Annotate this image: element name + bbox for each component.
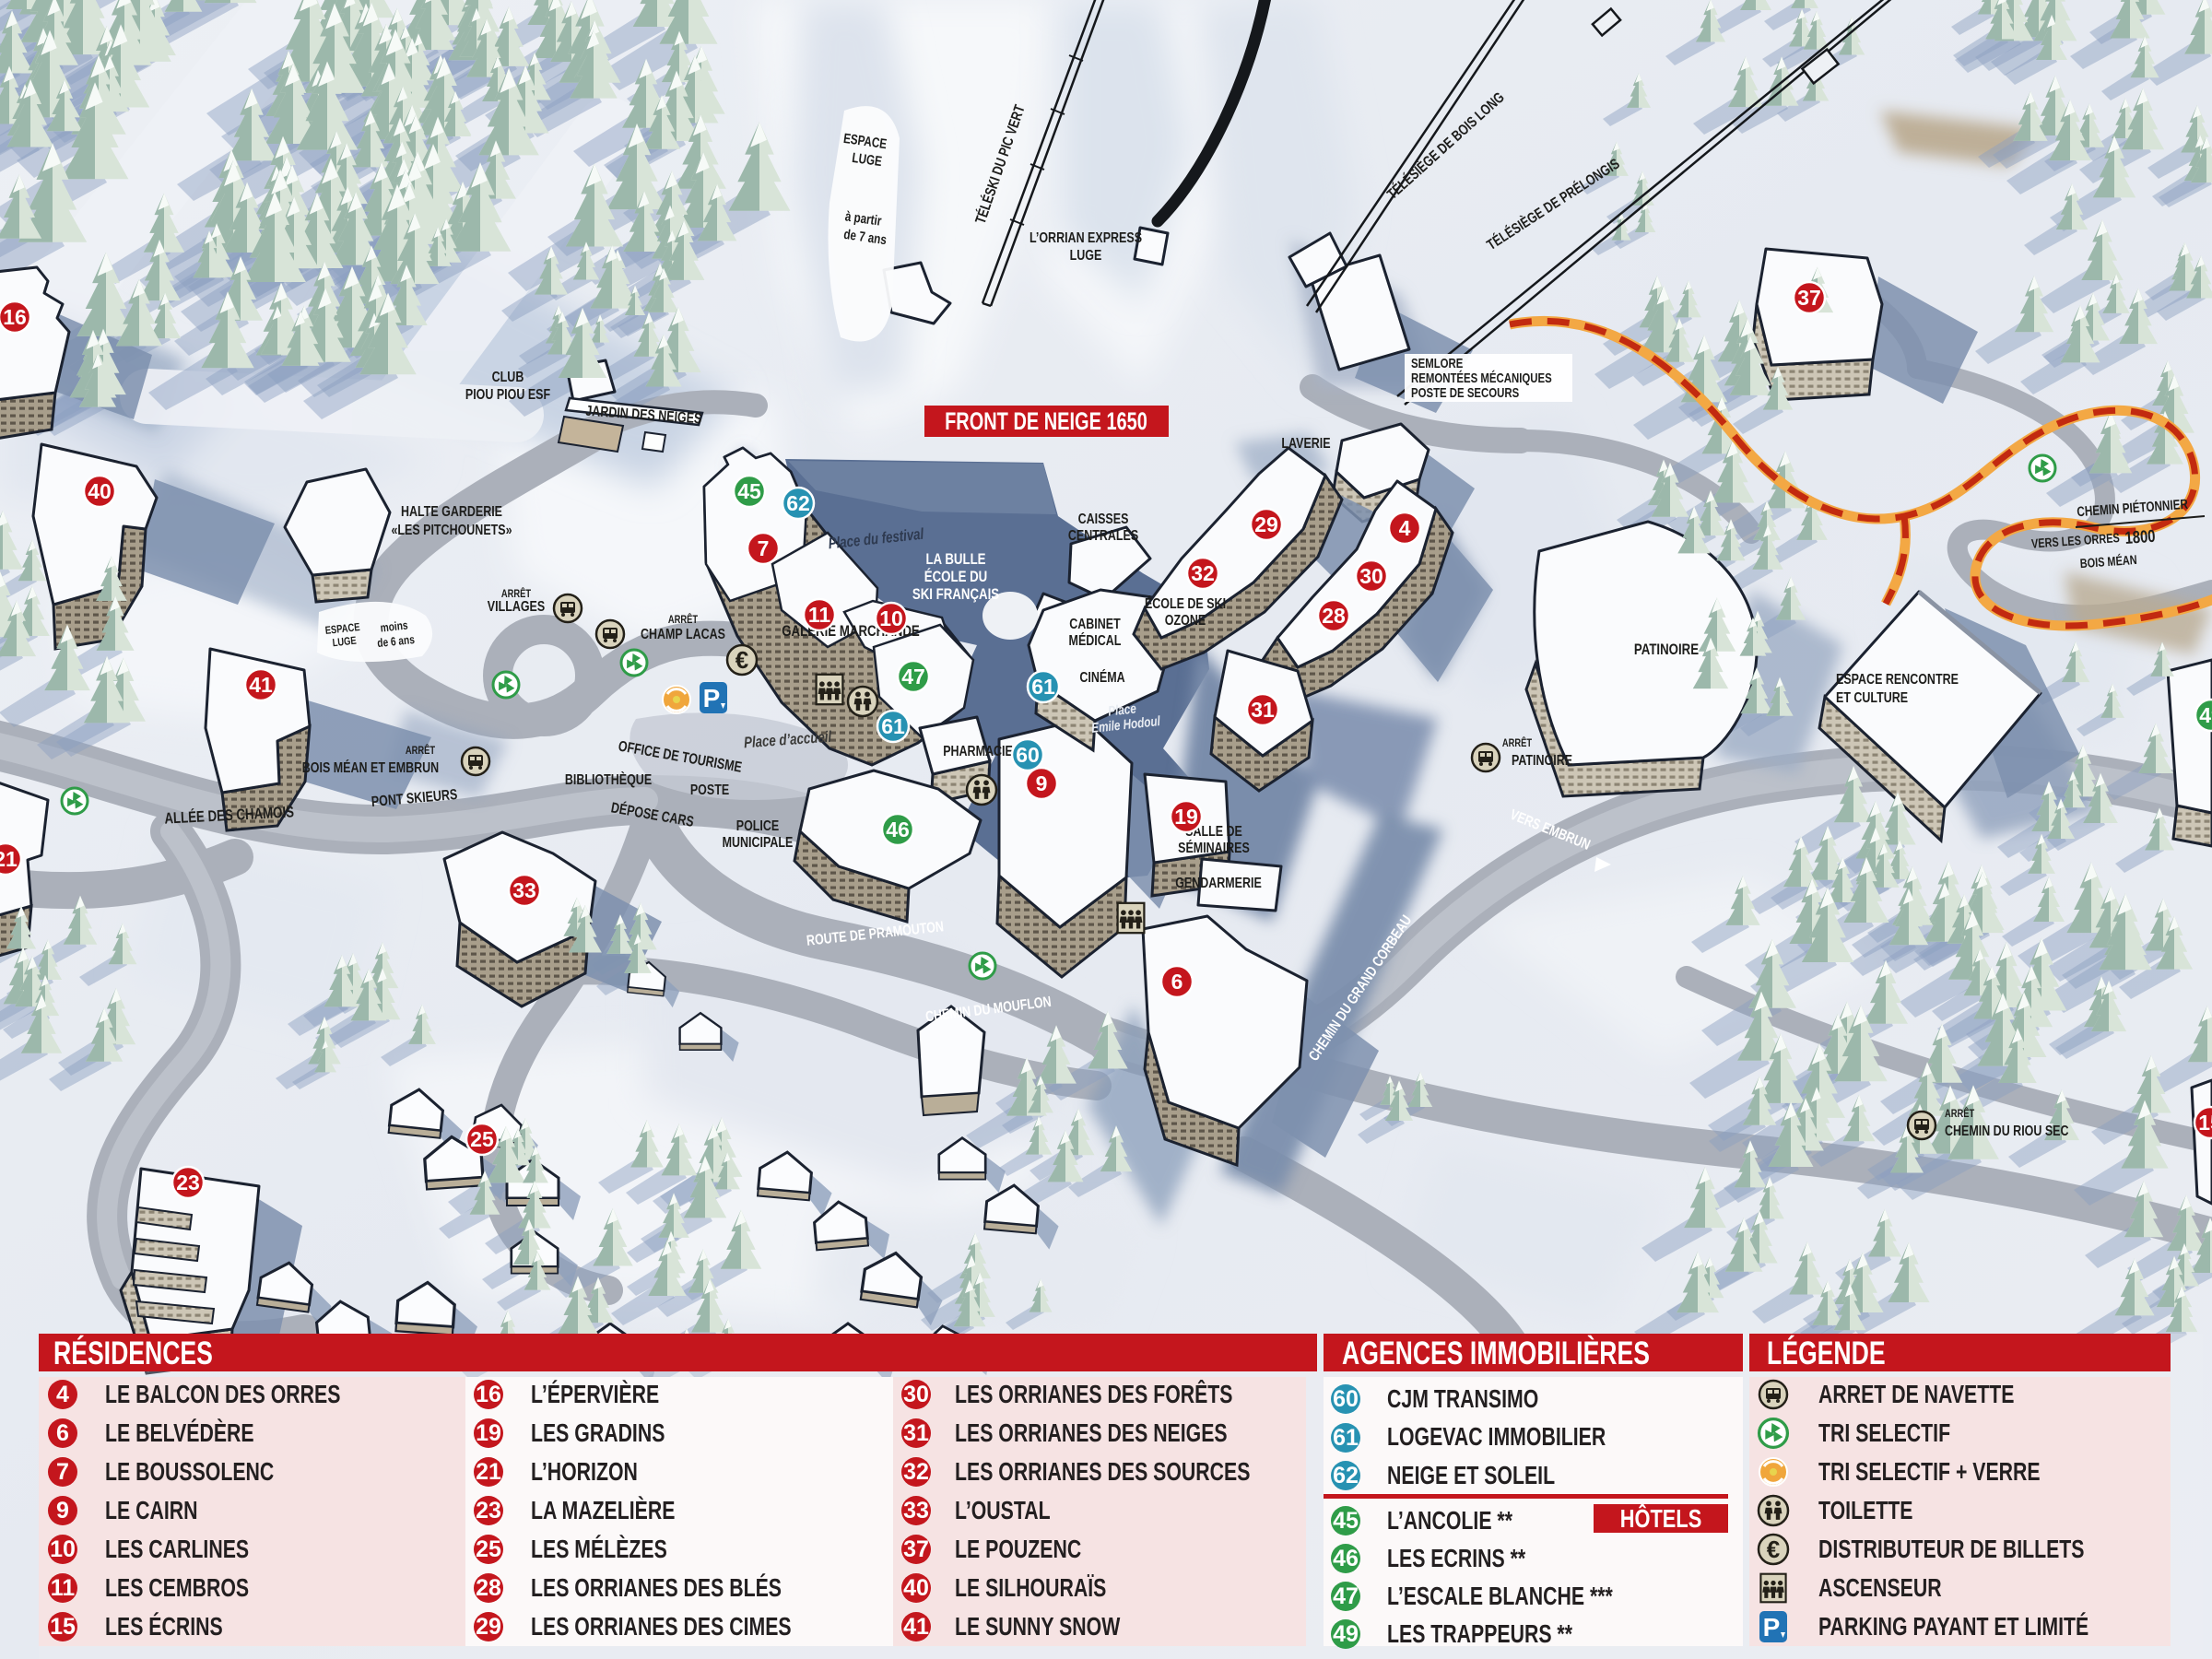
- svg-text:41: 41: [903, 1614, 929, 1640]
- svg-text:SKI FRANÇAIS: SKI FRANÇAIS: [912, 585, 999, 603]
- svg-text:P: P: [703, 684, 721, 712]
- svg-text:TRI SELECTIF: TRI SELECTIF: [1818, 1418, 1950, 1447]
- svg-text:LES CARLINES: LES CARLINES: [105, 1535, 249, 1563]
- svg-text:4: 4: [56, 1382, 69, 1407]
- svg-text:CAISSES: CAISSES: [1078, 512, 1129, 527]
- svg-text:P: P: [1763, 1613, 1781, 1641]
- svg-text:61: 61: [1031, 675, 1055, 699]
- svg-text:25: 25: [476, 1536, 501, 1562]
- svg-text:MUNICIPALE: MUNICIPALE: [723, 835, 794, 851]
- svg-text:L’ÉPERVIÈRE: L’ÉPERVIÈRE: [531, 1380, 659, 1408]
- svg-text:RÉSIDENCES: RÉSIDENCES: [53, 1335, 213, 1371]
- svg-text:32: 32: [903, 1459, 929, 1485]
- svg-text:LUGE: LUGE: [332, 634, 357, 650]
- svg-text:MÉDICAL: MÉDICAL: [1069, 631, 1122, 649]
- svg-text:CJM TRANSIMO: CJM TRANSIMO: [1387, 1384, 1538, 1413]
- svg-text:SEMLORE: SEMLORE: [1411, 356, 1463, 371]
- svg-text:ASCENSEUR: ASCENSEUR: [1818, 1573, 1942, 1602]
- svg-text:PARKING PAYANT ET LIMITÉ: PARKING PAYANT ET LIMITÉ: [1818, 1612, 2088, 1641]
- svg-text:49: 49: [2199, 703, 2212, 727]
- svg-text:49: 49: [1333, 1621, 1359, 1647]
- svg-text:33: 33: [903, 1498, 929, 1524]
- svg-text:10: 10: [879, 606, 903, 630]
- svg-text:9: 9: [56, 1498, 69, 1524]
- svg-text:HALTE GARDERIE: HALTE GARDERIE: [401, 504, 502, 520]
- svg-text:7: 7: [758, 536, 770, 560]
- svg-text:LOGEVAC IMMOBILIER: LOGEVAC IMMOBILIER: [1387, 1422, 1606, 1451]
- svg-text:15: 15: [2198, 1111, 2212, 1135]
- svg-text:DISTRIBUTEUR DE BILLETS: DISTRIBUTEUR DE BILLETS: [1818, 1535, 2085, 1563]
- svg-text:LES ORRIANES DES BLÉS: LES ORRIANES DES BLÉS: [531, 1573, 782, 1602]
- svg-text:L’ORRIAN EXPRESS: L’ORRIAN EXPRESS: [1030, 230, 1142, 246]
- svg-text:60: 60: [1016, 743, 1040, 767]
- svg-text:19: 19: [1174, 805, 1198, 829]
- svg-text:CABINET: CABINET: [1069, 617, 1121, 632]
- svg-text:6: 6: [1171, 970, 1183, 994]
- svg-text:LE BOUSSOLENC: LE BOUSSOLENC: [105, 1457, 274, 1486]
- svg-text:BOIS MÉAN ET EMBRUN: BOIS MÉAN ET EMBRUN: [302, 759, 439, 776]
- svg-text:LES ORRIANES DES FORÊTS: LES ORRIANES DES FORÊTS: [955, 1380, 1233, 1408]
- svg-text:PHARMACIE: PHARMACIE: [943, 744, 1013, 759]
- svg-text:37: 37: [1797, 286, 1821, 310]
- svg-text:47: 47: [1333, 1583, 1359, 1609]
- svg-text:9: 9: [1036, 771, 1048, 795]
- svg-text:FRONT DE NEIGE 1650: FRONT DE NEIGE 1650: [945, 407, 1147, 435]
- svg-text:PATINOIRE: PATINOIRE: [1634, 641, 1699, 658]
- svg-text:CINÉMA: CINÉMA: [1079, 668, 1125, 686]
- svg-text:SÉMINAIRES: SÉMINAIRES: [1178, 839, 1250, 856]
- svg-text:31: 31: [1251, 698, 1275, 722]
- svg-text:16: 16: [476, 1382, 501, 1407]
- svg-text:ARRET DE NAVETTE: ARRET DE NAVETTE: [1818, 1380, 2014, 1408]
- svg-text:LES ECRINS **: LES ECRINS **: [1387, 1544, 1525, 1572]
- svg-text:46: 46: [1333, 1546, 1359, 1571]
- svg-text:33: 33: [512, 878, 536, 902]
- svg-text:ARRÊT: ARRÊT: [1502, 735, 1533, 749]
- svg-text:45: 45: [1333, 1508, 1359, 1534]
- svg-text:AGENCES IMMOBILIÈRES: AGENCES IMMOBILIÈRES: [1342, 1335, 1650, 1371]
- svg-text:62: 62: [1333, 1463, 1359, 1488]
- svg-text:REMONTÉES MÉCANIQUES: REMONTÉES MÉCANIQUES: [1411, 371, 1552, 386]
- svg-text:62: 62: [786, 491, 810, 515]
- svg-text:28: 28: [1322, 604, 1346, 628]
- svg-text:OZONE: OZONE: [1165, 613, 1206, 629]
- svg-text:ARRÊT: ARRÊT: [406, 743, 436, 757]
- svg-text:25: 25: [470, 1127, 494, 1151]
- svg-text:21: 21: [0, 847, 18, 871]
- svg-text:1800: 1800: [2124, 527, 2156, 548]
- svg-text:LUGE: LUGE: [1070, 248, 1102, 264]
- svg-text:61: 61: [881, 714, 905, 738]
- svg-text:LES ORRIANES DES NEIGES: LES ORRIANES DES NEIGES: [955, 1418, 1228, 1447]
- svg-text:L’ANCOLIE **: L’ANCOLIE **: [1387, 1506, 1512, 1535]
- svg-text:PATINOIRE: PATINOIRE: [1512, 753, 1572, 769]
- svg-text:L’ESCALE BLANCHE ***: L’ESCALE BLANCHE ***: [1387, 1582, 1613, 1610]
- svg-text:€: €: [735, 646, 748, 674]
- svg-text:TRI SELECTIF + VERRE: TRI SELECTIF + VERRE: [1818, 1457, 2041, 1486]
- svg-text:46: 46: [886, 818, 910, 841]
- svg-text:40: 40: [903, 1575, 929, 1601]
- svg-text:4: 4: [1399, 516, 1411, 540]
- svg-text:ÉCOLE DU: ÉCOLE DU: [924, 568, 988, 585]
- svg-text:31: 31: [903, 1420, 929, 1446]
- svg-text:30: 30: [1359, 564, 1383, 588]
- svg-text:11: 11: [51, 1575, 76, 1601]
- svg-text:LE BALCON DES ORRES: LE BALCON DES ORRES: [105, 1380, 340, 1408]
- svg-text:«LES PITCHOUNETS»: «LES PITCHOUNETS»: [391, 523, 512, 538]
- svg-text:LE BELVÉDÈRE: LE BELVÉDÈRE: [105, 1418, 254, 1447]
- svg-text:19: 19: [476, 1420, 501, 1446]
- svg-text:LE CAIRN: LE CAIRN: [105, 1496, 198, 1524]
- svg-text:CHEMIN DU RIOU SEC: CHEMIN DU RIOU SEC: [1945, 1124, 2069, 1139]
- svg-text:LES TRAPPEURS **: LES TRAPPEURS **: [1387, 1619, 1572, 1648]
- svg-text:HÔTELS: HÔTELS: [1620, 1503, 1702, 1533]
- svg-text:LAVERIE: LAVERIE: [1281, 436, 1330, 452]
- svg-text:LA MAZELIÈRE: LA MAZELIÈRE: [531, 1496, 675, 1524]
- svg-text:37: 37: [903, 1536, 929, 1562]
- svg-text:ARRÊT: ARRÊT: [501, 586, 532, 600]
- svg-text:CENTRALES: CENTRALES: [1068, 528, 1139, 544]
- svg-text:LE POUZENC: LE POUZENC: [955, 1535, 1081, 1563]
- svg-text:TOILETTE: TOILETTE: [1818, 1496, 1913, 1524]
- svg-text:POLICE: POLICE: [736, 818, 780, 834]
- svg-text:15: 15: [50, 1614, 76, 1640]
- svg-text:10: 10: [50, 1536, 76, 1562]
- svg-text:61: 61: [1333, 1425, 1359, 1451]
- svg-text:ARRÊT: ARRÊT: [1945, 1106, 1975, 1120]
- svg-text:PIOU PIOU ESF: PIOU PIOU ESF: [465, 387, 550, 403]
- svg-text:41: 41: [249, 673, 273, 697]
- svg-text:ET CULTURE: ET CULTURE: [1836, 690, 1908, 706]
- svg-text:moins: moins: [380, 618, 408, 635]
- svg-text:7: 7: [56, 1459, 69, 1485]
- svg-text:6: 6: [56, 1420, 69, 1446]
- svg-text:ÉCOLE DE SKI: ÉCOLE DE SKI: [1145, 594, 1226, 612]
- svg-text:32: 32: [1191, 561, 1215, 585]
- svg-text:ESPACE RENCONTRE: ESPACE RENCONTRE: [1836, 672, 1959, 688]
- svg-text:LE SUNNY SNOW: LE SUNNY SNOW: [955, 1612, 1121, 1641]
- svg-text:LES ORRIANES DES SOURCES: LES ORRIANES DES SOURCES: [955, 1457, 1250, 1486]
- svg-text:11: 11: [808, 603, 831, 627]
- svg-text:29: 29: [476, 1614, 501, 1640]
- svg-text:60: 60: [1333, 1386, 1359, 1412]
- svg-text:23: 23: [176, 1171, 200, 1194]
- svg-text:LES CEMBROS: LES CEMBROS: [105, 1573, 249, 1602]
- svg-text:LÉGENDE: LÉGENDE: [1767, 1335, 1886, 1371]
- svg-text:CLUB: CLUB: [492, 370, 524, 385]
- svg-text:LES GRADINS: LES GRADINS: [531, 1418, 665, 1447]
- svg-text:16: 16: [3, 305, 27, 329]
- svg-text:€: €: [1767, 1535, 1780, 1563]
- svg-text:30: 30: [903, 1382, 929, 1407]
- svg-text:LES MÉLÈZES: LES MÉLÈZES: [531, 1535, 667, 1563]
- svg-text:BIBLIOTHÈQUE: BIBLIOTHÈQUE: [565, 771, 653, 788]
- svg-text:23: 23: [476, 1498, 501, 1524]
- svg-text:45: 45: [737, 479, 761, 503]
- svg-text:L’HORIZON: L’HORIZON: [531, 1457, 638, 1486]
- svg-text:LES ÉCRINS: LES ÉCRINS: [105, 1612, 223, 1641]
- svg-text:L’OUSTAL: L’OUSTAL: [955, 1496, 1051, 1524]
- svg-text:ARRÊT: ARRÊT: [668, 612, 699, 626]
- svg-text:NEIGE ET SOLEIL: NEIGE ET SOLEIL: [1387, 1461, 1555, 1489]
- svg-text:LE SILHOURAÏS: LE SILHOURAÏS: [955, 1573, 1106, 1602]
- svg-text:47: 47: [901, 665, 925, 688]
- svg-text:21: 21: [476, 1459, 501, 1485]
- svg-text:POSTE: POSTE: [690, 782, 730, 798]
- svg-text:29: 29: [1254, 512, 1278, 536]
- svg-text:GENDARMERIE: GENDARMERIE: [1175, 876, 1262, 891]
- svg-text:POSTE DE SECOURS: POSTE DE SECOURS: [1411, 385, 1519, 401]
- svg-text:LES ORRIANES DES CIMES: LES ORRIANES DES CIMES: [531, 1612, 792, 1641]
- svg-text:VILLAGES: VILLAGES: [488, 599, 546, 615]
- svg-text:28: 28: [476, 1575, 501, 1601]
- svg-text:CHAMP LACAS: CHAMP LACAS: [641, 627, 725, 642]
- svg-text:40: 40: [88, 479, 112, 503]
- svg-text:LA BULLE: LA BULLE: [925, 550, 985, 568]
